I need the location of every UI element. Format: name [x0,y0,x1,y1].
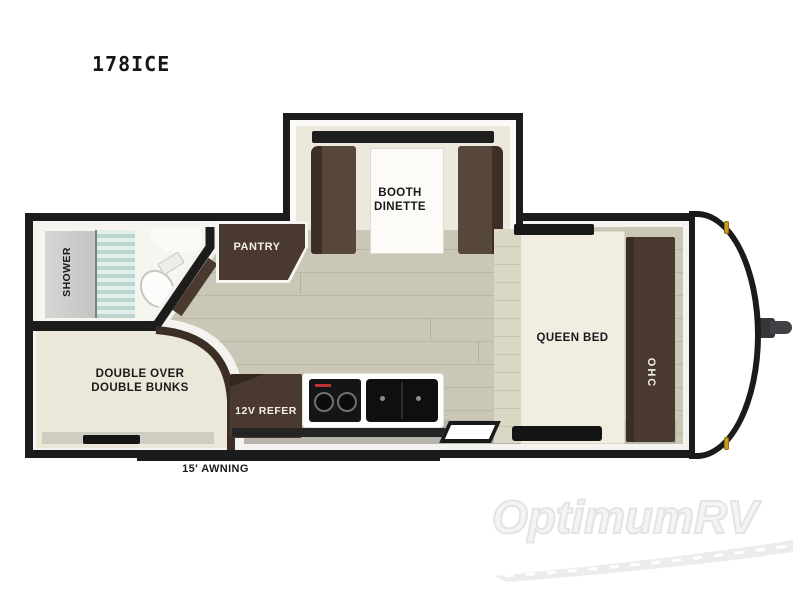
burner-icon [337,392,357,412]
bedroom-window-top [514,224,594,235]
faucet-dot [380,396,385,401]
floor-plank-joint [430,318,431,340]
stove-brand-mark [315,384,331,387]
queen-bed-label: QUEEN BED [520,331,625,345]
refrigerator-label: 12V REFER [230,405,302,417]
bunk-label: DOUBLE OVER DOUBLE BUNKS [58,367,222,396]
marker-light-bottom [724,437,729,450]
booth-dinette-label: BOOTH DINETTE [336,186,464,215]
watermark-road [495,540,795,582]
ohc-label: OHC [643,336,657,410]
faucet-dot [416,396,421,401]
page-title: 178ICE [92,52,170,76]
counter-front-edge [232,428,474,437]
floorplan-canvas: 178ICE BOOTH DINETTE SHOWER DOUBLE OVER … [0,0,800,600]
awning-bar [137,452,440,461]
hitch-coupler [770,321,792,334]
entry-door [439,421,501,443]
bunk-window [83,435,140,444]
cooktop [309,379,361,422]
bed-steps [494,229,521,443]
pantry-label: PANTRY [219,241,295,253]
floor-plank-joint [300,272,301,294]
sink-divider [401,382,403,419]
marker-light-top [724,221,729,234]
watermark-text: OptimumRV [492,490,792,544]
double-sink [366,379,438,422]
front-cap [689,211,761,459]
dinette-window [312,131,494,143]
floor-plank-joint [478,341,479,363]
bedroom-window-bottom [512,426,602,441]
awning-label: 15' AWNING [143,463,288,477]
burner-icon [314,392,334,412]
shower-label: SHOWER [61,234,75,310]
shower-door-glass [95,230,135,318]
